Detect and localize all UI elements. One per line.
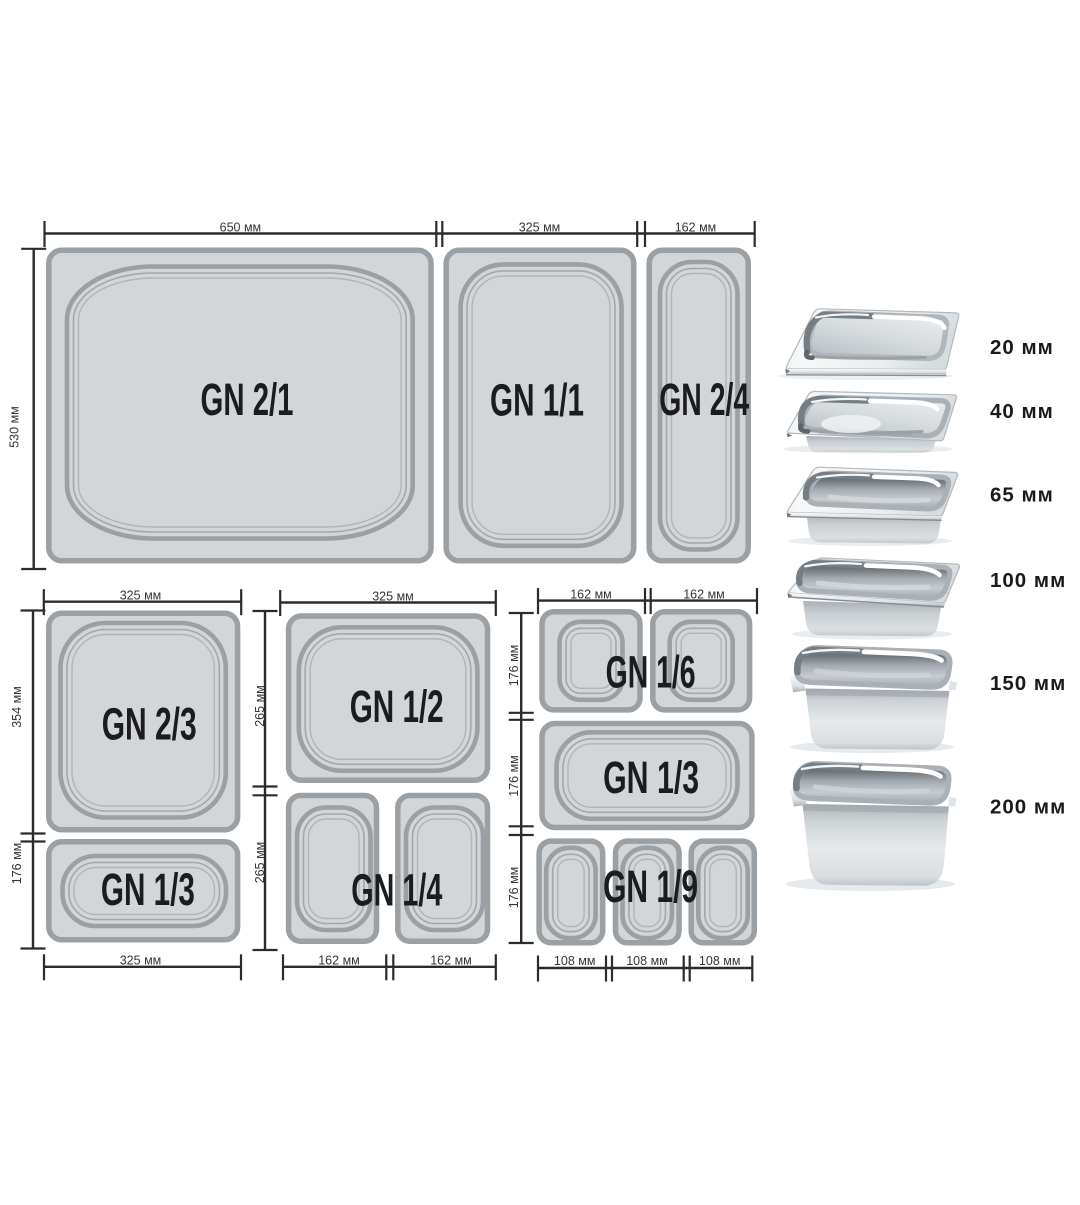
- svg-text:GN 1/3: GN 1/3: [603, 752, 699, 803]
- svg-text:162 мм: 162 мм: [675, 220, 717, 234]
- svg-text:176 мм: 176 мм: [507, 755, 521, 797]
- svg-text:176 мм: 176 мм: [507, 645, 521, 687]
- svg-text:325 мм: 325 мм: [120, 954, 162, 968]
- svg-text:176 мм: 176 мм: [507, 867, 521, 909]
- svg-text:325 мм: 325 мм: [120, 589, 162, 603]
- svg-text:40 мм: 40 мм: [990, 400, 1054, 423]
- svg-text:108 мм: 108 мм: [699, 954, 741, 968]
- svg-text:162 мм: 162 мм: [318, 954, 360, 968]
- svg-text:325 мм: 325 мм: [519, 220, 561, 234]
- svg-text:GN 1/4: GN 1/4: [351, 865, 442, 916]
- svg-text:162 мм: 162 мм: [570, 587, 612, 601]
- svg-text:GN 2/1: GN 2/1: [201, 374, 294, 425]
- svg-text:65 мм: 65 мм: [990, 484, 1054, 507]
- svg-text:GN 1/6: GN 1/6: [606, 646, 696, 697]
- svg-text:176 мм: 176 мм: [10, 843, 24, 885]
- svg-text:GN 1/9: GN 1/9: [603, 861, 698, 912]
- svg-text:265 мм: 265 мм: [253, 685, 267, 727]
- svg-text:162 мм: 162 мм: [683, 587, 725, 601]
- svg-text:162 мм: 162 мм: [430, 954, 472, 968]
- svg-text:325 мм: 325 мм: [372, 589, 414, 603]
- svg-text:GN 2/4: GN 2/4: [659, 374, 749, 425]
- svg-text:265 мм: 265 мм: [253, 842, 267, 884]
- svg-text:100 мм: 100 мм: [990, 569, 1066, 592]
- svg-text:108 мм: 108 мм: [626, 954, 668, 968]
- svg-text:20 мм: 20 мм: [990, 336, 1054, 359]
- svg-text:GN 1/3: GN 1/3: [101, 864, 195, 915]
- svg-text:200 мм: 200 мм: [990, 796, 1066, 819]
- svg-text:354 мм: 354 мм: [10, 686, 24, 728]
- svg-text:108 мм: 108 мм: [554, 954, 596, 968]
- svg-text:530 мм: 530 мм: [8, 406, 22, 448]
- svg-text:GN 2/3: GN 2/3: [102, 699, 197, 750]
- svg-text:650 мм: 650 мм: [220, 220, 262, 234]
- svg-text:GN 1/1: GN 1/1: [490, 374, 584, 425]
- svg-text:150 мм: 150 мм: [990, 672, 1066, 695]
- svg-text:GN 1/2: GN 1/2: [350, 681, 444, 732]
